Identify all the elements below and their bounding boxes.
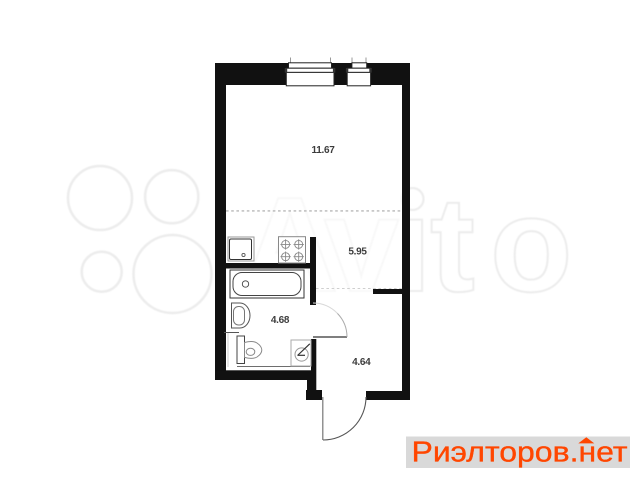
svg-text:4.64: 4.64 xyxy=(352,357,371,368)
svg-text:4.68: 4.68 xyxy=(271,315,290,326)
svg-text:5.95: 5.95 xyxy=(348,247,367,258)
svg-text:11.67: 11.67 xyxy=(312,145,336,156)
svg-text:Риэлторов.нет: Риэлторов.нет xyxy=(412,436,628,468)
